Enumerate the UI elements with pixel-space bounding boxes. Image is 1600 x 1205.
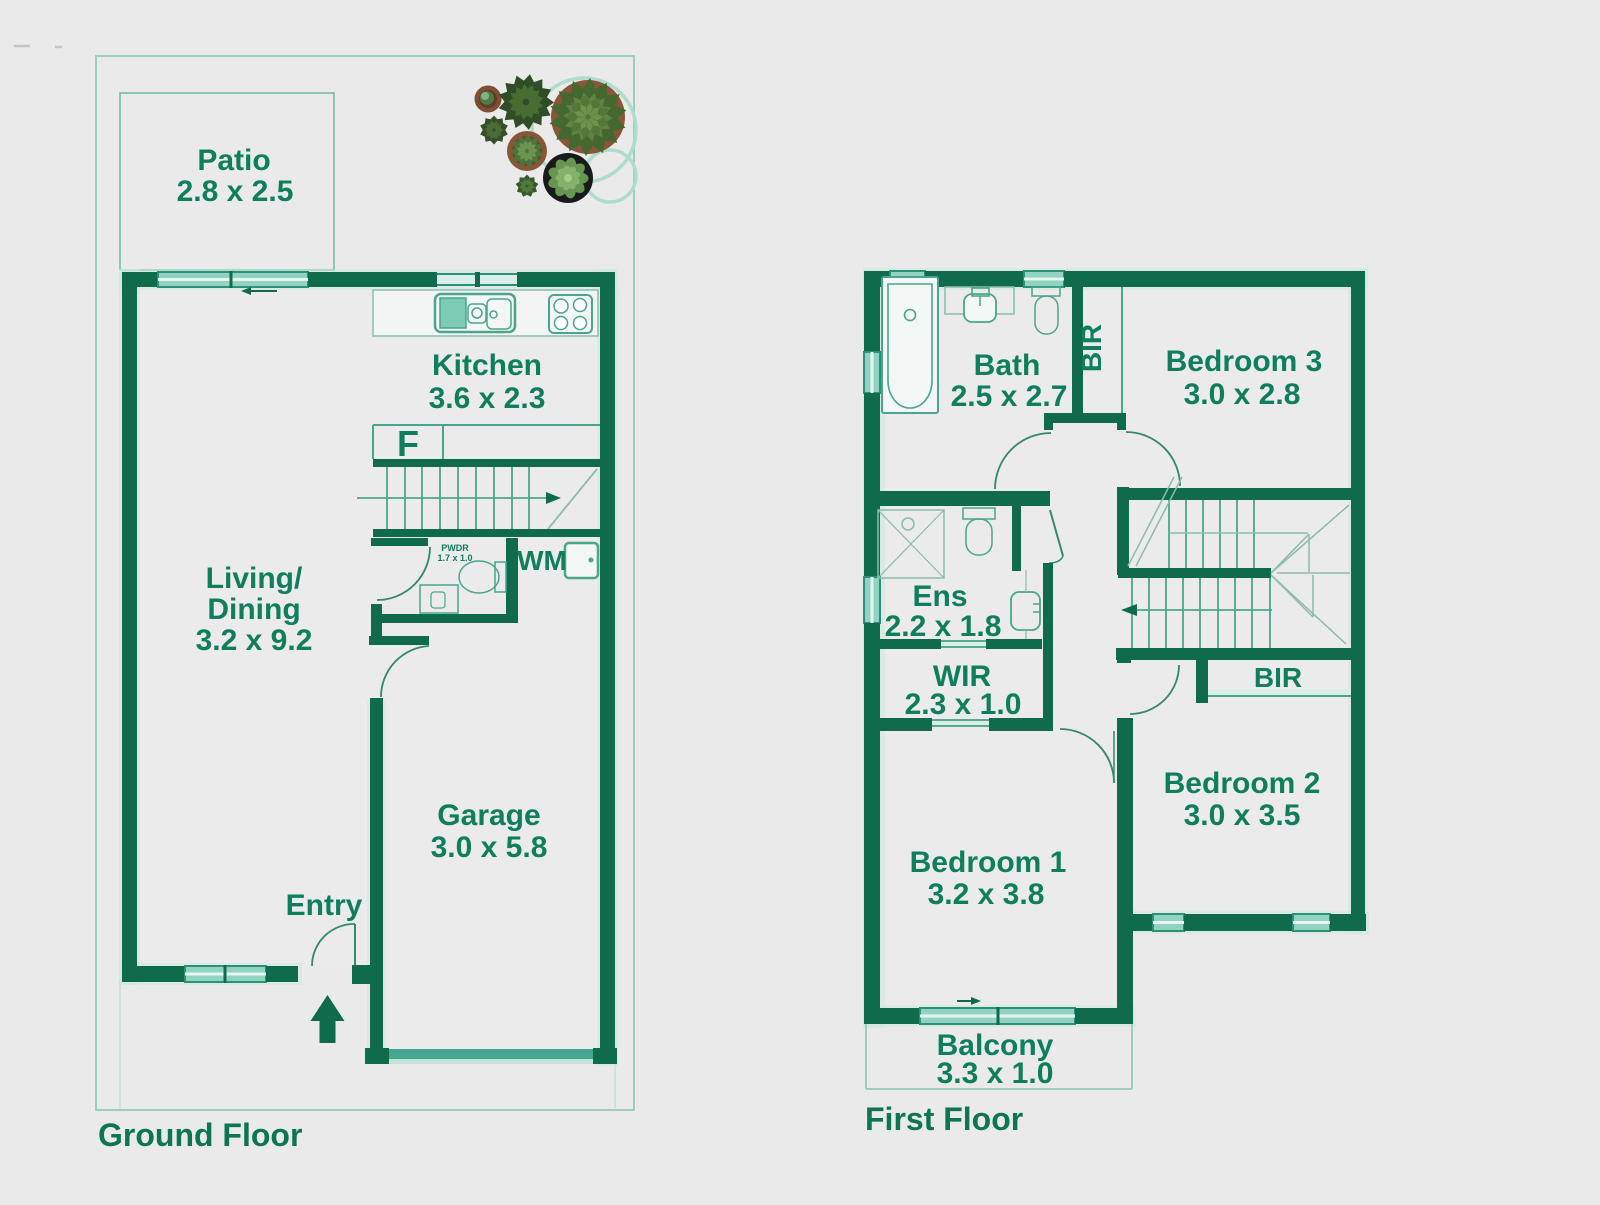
svg-text:Garage: Garage: [437, 799, 540, 832]
svg-text:Bath: Bath: [974, 349, 1041, 382]
svg-text:Bedroom 2: Bedroom 2: [1164, 767, 1321, 800]
svg-text:3.6 x 2.3: 3.6 x 2.3: [429, 382, 546, 415]
svg-text:Living/: Living/: [206, 562, 303, 595]
svg-text:Bedroom 1: Bedroom 1: [910, 846, 1067, 879]
svg-text:3.2 x 9.2: 3.2 x 9.2: [196, 624, 313, 657]
svg-text:Dining: Dining: [207, 593, 300, 626]
svg-text:Patio: Patio: [197, 144, 270, 177]
svg-text:3.2 x 3.8: 3.2 x 3.8: [928, 878, 1045, 911]
svg-text:3.0 x 3.5: 3.0 x 3.5: [1184, 799, 1301, 832]
svg-text:PWDR: PWDR: [441, 543, 469, 553]
svg-text:2.5 x 2.7: 2.5 x 2.7: [951, 380, 1068, 413]
svg-text:Ens: Ens: [912, 580, 967, 613]
svg-text:Bedroom 3: Bedroom 3: [1166, 345, 1323, 378]
svg-text:First Floor: First Floor: [865, 1101, 1023, 1137]
svg-text:BIR: BIR: [1076, 324, 1107, 372]
svg-text:3.3 x 1.0: 3.3 x 1.0: [937, 1057, 1054, 1090]
svg-text:3.0 x 2.8: 3.0 x 2.8: [1184, 378, 1301, 411]
svg-text:Ground Floor: Ground Floor: [98, 1117, 302, 1153]
svg-text:2.2 x 1.8: 2.2 x 1.8: [885, 610, 1002, 643]
svg-text:WM: WM: [517, 545, 567, 576]
svg-text:2.8 x 2.5: 2.8 x 2.5: [177, 175, 294, 208]
svg-text:3.0 x 5.8: 3.0 x 5.8: [431, 831, 548, 864]
svg-text:1.7 x 1.0: 1.7 x 1.0: [437, 553, 472, 563]
svg-text:Kitchen: Kitchen: [432, 349, 542, 382]
svg-text:BIR: BIR: [1254, 662, 1302, 693]
svg-text:F: F: [397, 423, 419, 464]
svg-text:Entry: Entry: [286, 889, 363, 922]
svg-text:2.3 x 1.0: 2.3 x 1.0: [905, 688, 1022, 721]
